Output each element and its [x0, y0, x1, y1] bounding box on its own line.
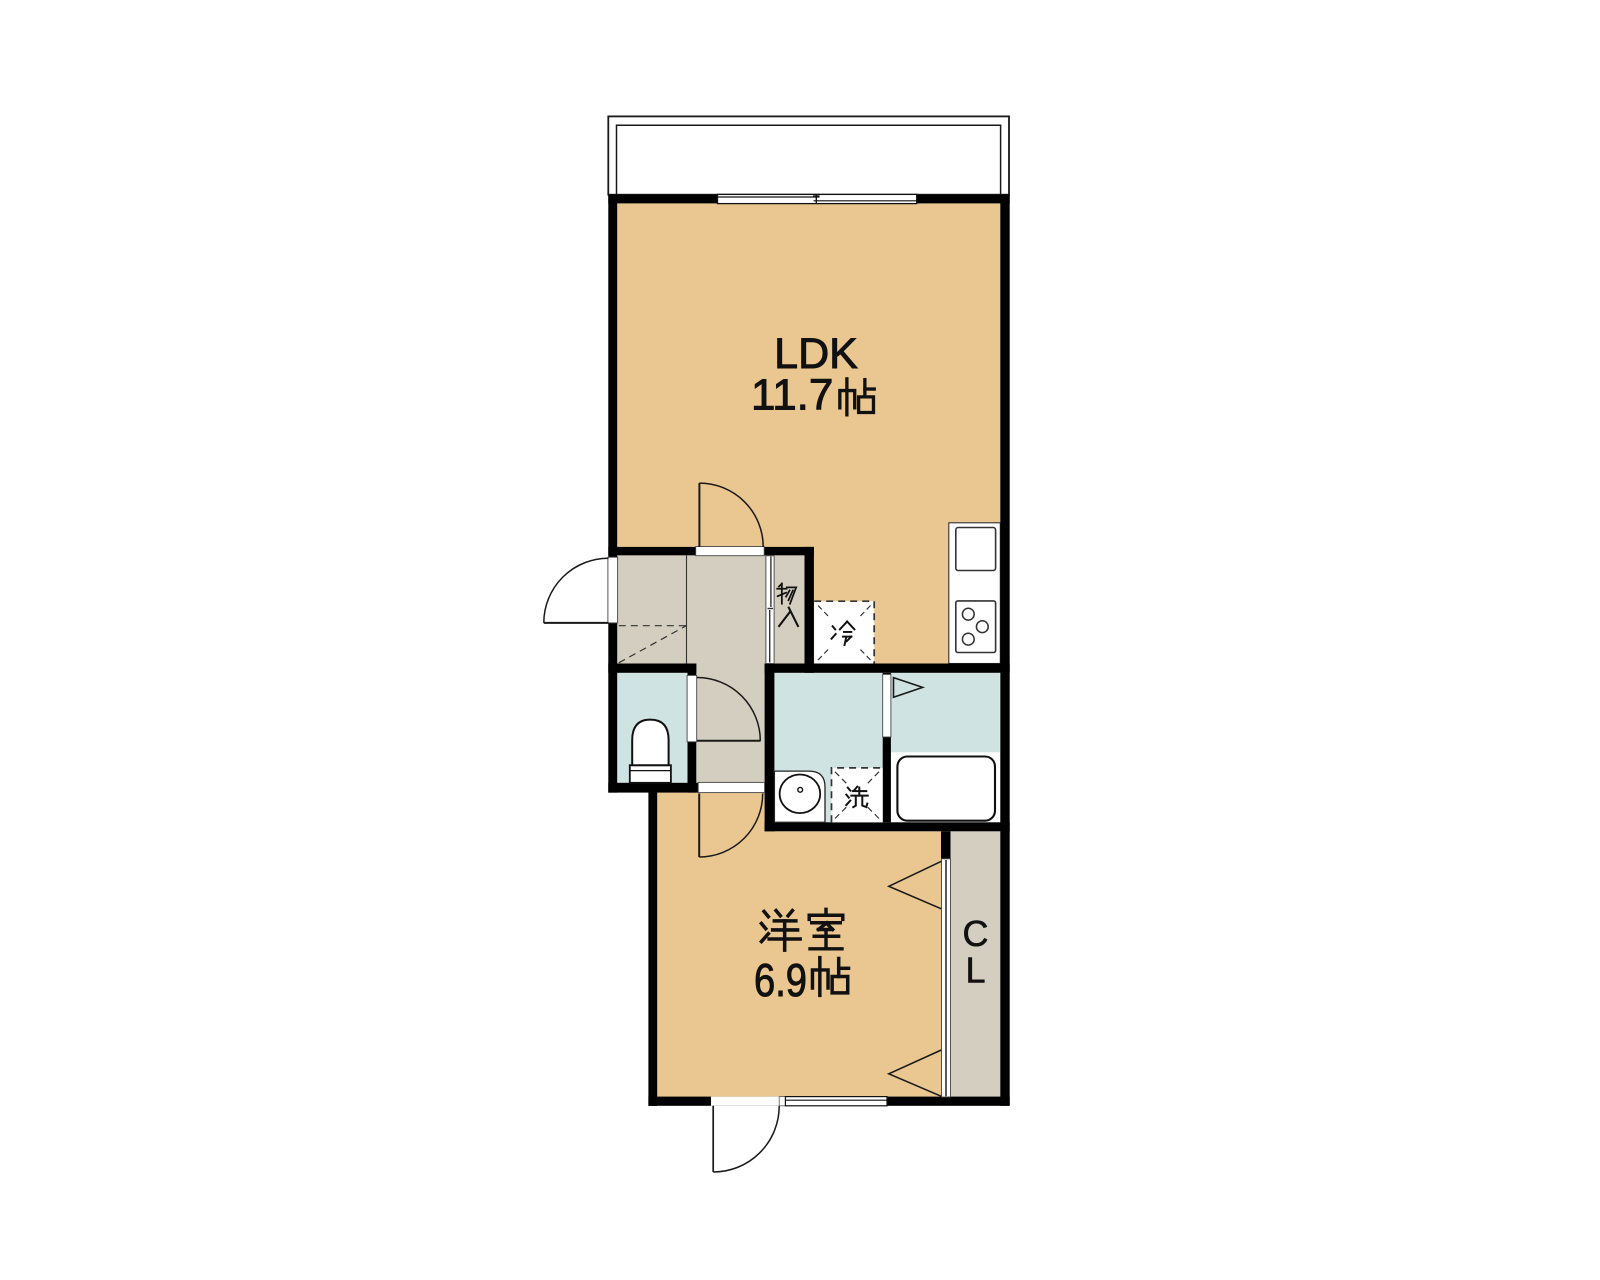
- svg-text:C: C: [963, 913, 989, 954]
- svg-text:6.9: 6.9: [754, 954, 807, 1006]
- svg-text:L: L: [965, 950, 985, 991]
- svg-text:11.7: 11.7: [751, 371, 833, 420]
